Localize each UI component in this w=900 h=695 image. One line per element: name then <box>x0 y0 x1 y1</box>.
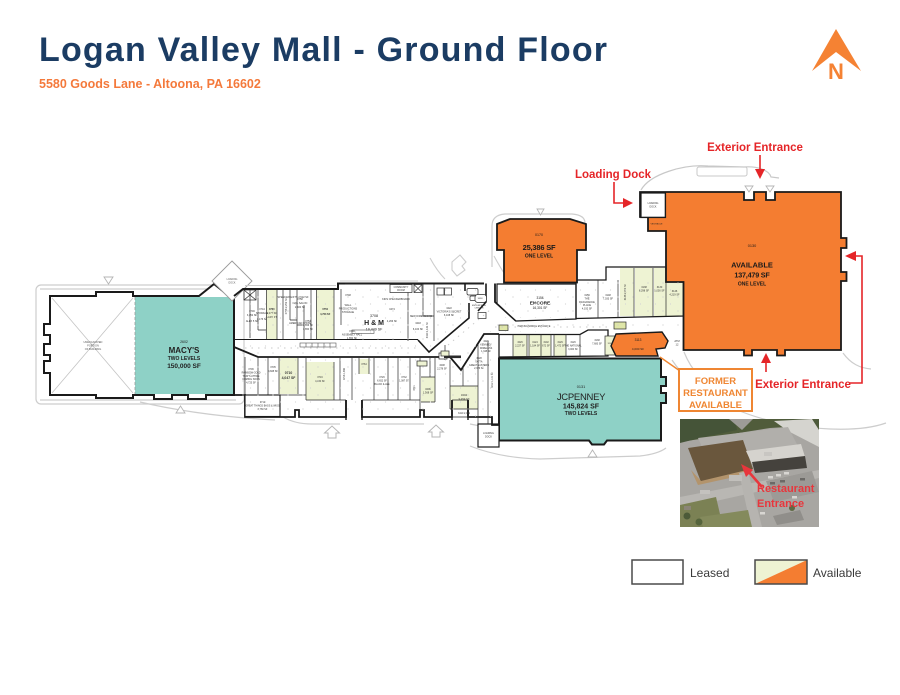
svg-text:DOCK: DOCK <box>485 435 492 438</box>
svg-text:DOCK: DOCK <box>229 281 236 284</box>
svg-text:FORMER: FORMER <box>695 376 736 387</box>
svg-text:ATM: ATM <box>674 339 679 343</box>
svg-text:ONE LEVEL: ONE LEVEL <box>738 282 766 288</box>
svg-text:Loading Dock: Loading Dock <box>575 169 652 181</box>
svg-text:Exterior Entrance: Exterior Entrance <box>755 379 851 391</box>
svg-text:Restaurant: Restaurant <box>757 483 815 495</box>
svg-text:137,479 SF: 137,479 SF <box>734 271 770 280</box>
svg-text:3,000 SF: 3,000 SF <box>568 348 578 351</box>
svg-text:AVAILABLE: AVAILABLE <box>689 400 742 411</box>
svg-text:1,184 SF: 1,184 SF <box>530 344 540 347</box>
svg-text:5580 Goods Lane - Altoona, PA: 5580 Goods Lane - Altoona, PA 16602 <box>39 77 261 91</box>
svg-text:672 SF: 672 SF <box>542 344 550 347</box>
svg-text:3113: 3113 <box>635 338 642 342</box>
svg-text:MACY'S: MACY'S <box>169 346 200 355</box>
svg-text:N: N <box>828 59 844 84</box>
svg-text:PORTION: PORTION <box>87 343 99 347</box>
svg-text:0131: 0131 <box>577 385 585 389</box>
svg-text:TWO LEVELS: TWO LEVELS <box>565 411 598 417</box>
svg-text:TWO LEVELS: TWO LEVELS <box>168 356 201 362</box>
svg-text:ONE LEVEL: ONE LEVEL <box>525 254 553 260</box>
svg-text:3104: 3104 <box>608 343 614 345</box>
svg-text:150,000 SF: 150,000 SF <box>167 363 201 370</box>
svg-text:2602: 2602 <box>180 340 188 344</box>
svg-text:DOCK: DOCK <box>650 205 657 208</box>
svg-text:AVAILABLE: AVAILABLE <box>731 261 773 270</box>
svg-text:RESTAURANT: RESTAURANT <box>683 388 748 399</box>
svg-text:VESTIBULE: VESTIBULE <box>650 224 663 226</box>
svg-text:7,683 SF: 7,683 SF <box>592 342 602 345</box>
svg-text:JCPENNEY: JCPENNEY <box>557 392 606 403</box>
svg-text:Logan Valley Mall - Ground Flo: Logan Valley Mall - Ground Floor <box>39 31 608 69</box>
svg-text:OF BUILDING: OF BUILDING <box>85 347 102 351</box>
svg-text:Entrance: Entrance <box>757 498 804 510</box>
svg-text:25,386 SF: 25,386 SF <box>523 243 556 252</box>
svg-text:CENTER: CENTER <box>475 308 484 310</box>
svg-text:Available: Available <box>813 566 862 580</box>
svg-text:Exterior Entrance: Exterior Entrance <box>707 142 803 154</box>
svg-text:2,227 SF: 2,227 SF <box>515 344 525 347</box>
svg-text:0170: 0170 <box>535 233 543 237</box>
svg-text:UNEXCAVATED: UNEXCAVATED <box>84 340 103 344</box>
svg-text:Leased: Leased <box>690 566 729 580</box>
svg-text:0130: 0130 <box>748 244 756 248</box>
svg-text:145,824 SF: 145,824 SF <box>563 404 600 411</box>
svg-text:4,000 SF: 4,000 SF <box>632 347 644 351</box>
